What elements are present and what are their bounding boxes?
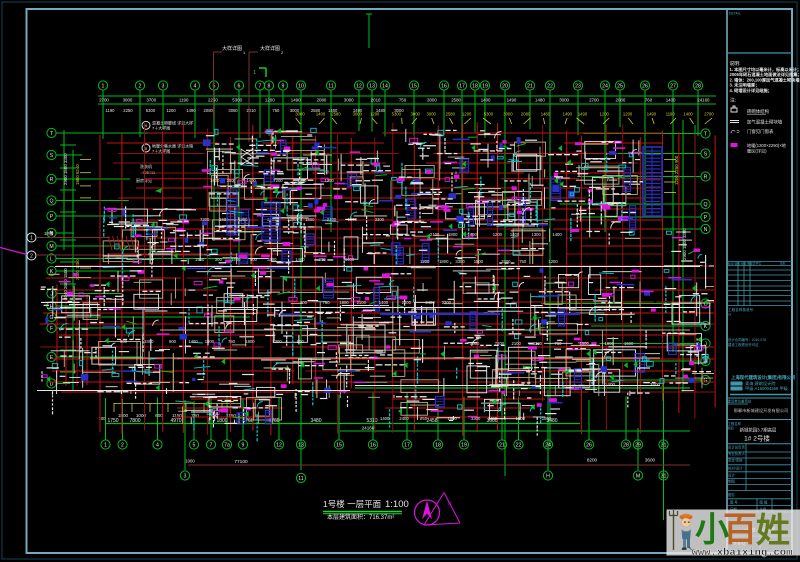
svg-text:R: R (50, 177, 54, 183)
svg-text:7200: 7200 (495, 341, 505, 346)
svg-text:2400: 2400 (488, 416, 498, 421)
svg-text:12: 12 (356, 83, 362, 89)
svg-text:1400: 1400 (552, 232, 562, 237)
svg-text:S: S (704, 151, 708, 157)
svg-text:1400: 1400 (188, 339, 198, 344)
svg-text:750: 750 (399, 98, 407, 103)
svg-text:750: 750 (228, 339, 236, 344)
svg-text:1490: 1490 (291, 98, 301, 103)
svg-text:5300: 5300 (146, 108, 156, 113)
svg-text:1号楼 一层平面: 1号楼 一层平面 (323, 499, 382, 509)
svg-text:1400: 1400 (210, 178, 220, 183)
svg-text:900: 900 (250, 257, 258, 262)
svg-text:7800: 7800 (129, 418, 140, 424)
svg-text:N: N (704, 227, 708, 233)
svg-text:11: 11 (298, 476, 303, 482)
svg-text:标记 处数 分区 修改文件号: 标记 处数 分区 修改文件号 (728, 262, 761, 266)
svg-text:7: 7 (210, 442, 213, 448)
svg-text:24160: 24160 (697, 98, 710, 103)
svg-text:百: 百 (723, 512, 757, 549)
svg-text:2400: 2400 (425, 300, 435, 305)
svg-text:5300: 5300 (232, 98, 242, 103)
svg-text:设计: 设计 (728, 473, 735, 478)
svg-text:1200: 1200 (493, 232, 503, 237)
svg-text:300: 300 (319, 257, 327, 262)
svg-text:门窗见门窗表: 门窗见门窗表 (747, 128, 774, 135)
svg-text:17: 17 (459, 83, 465, 89)
svg-text:1500: 1500 (195, 257, 205, 262)
svg-text:1490: 1490 (563, 112, 573, 117)
svg-text:签名: 签名 (780, 262, 786, 266)
svg-text:1300: 1300 (324, 178, 334, 183)
svg-text:N: N (448, 501, 452, 507)
svg-text:1500: 1500 (516, 416, 526, 421)
svg-text:1: 1 (102, 83, 105, 89)
svg-text:5310: 5310 (366, 418, 377, 424)
svg-text:25: 25 (617, 83, 623, 89)
svg-text:www.xbaixing.com: www.xbaixing.com (692, 547, 793, 559)
svg-text:13: 13 (369, 83, 375, 89)
svg-text:2: 2 (30, 254, 33, 260)
svg-text:2080: 2080 (204, 108, 214, 113)
svg-text:9: 9 (242, 442, 245, 448)
svg-text:3000: 3000 (559, 98, 569, 103)
svg-text:2010: 2010 (246, 108, 256, 113)
svg-text:1800: 1800 (245, 339, 255, 344)
svg-text:2080: 2080 (521, 112, 531, 117)
svg-text:1800: 1800 (439, 259, 449, 264)
svg-text:1400: 1400 (683, 112, 693, 117)
svg-text:邴鄆市新城建设开发有限公司: 邴鄆市新城建设开发有限公司 (734, 407, 788, 414)
svg-text:1500: 1500 (580, 341, 590, 346)
svg-text:1190: 1190 (179, 98, 189, 103)
svg-text:Q: Q (703, 202, 707, 208)
svg-text:图名: 图名 (728, 492, 735, 497)
svg-text:M: M (636, 473, 640, 479)
svg-text:3000: 3000 (427, 98, 437, 103)
svg-text:1200: 1200 (600, 112, 610, 117)
svg-text:2900 1500 3300: 2900 1500 3300 (682, 228, 687, 260)
svg-text:1800: 1800 (339, 300, 349, 305)
svg-text:设计总负责: 设计总负责 (728, 445, 746, 450)
svg-text:7a: 7a (224, 442, 230, 448)
svg-text:1300: 1300 (532, 232, 542, 237)
svg-text:2100: 2100 (430, 232, 440, 237)
svg-text:1800 5240: 1800 5240 (75, 164, 80, 185)
svg-text:1# 2号楼: 1# 2号楼 (744, 434, 770, 443)
svg-text:1000: 1000 (185, 459, 195, 464)
svg-text:DETAIL: DETAIL (729, 12, 741, 16)
svg-text:K: K (704, 324, 708, 330)
svg-text:F: F (50, 326, 53, 332)
svg-text:16: 16 (370, 442, 376, 448)
svg-text:760: 760 (645, 98, 653, 103)
svg-text:16: 16 (441, 83, 447, 89)
svg-text:1: 1 (30, 236, 33, 242)
svg-text:Q: Q (49, 198, 53, 204)
svg-text:1800: 1800 (305, 217, 315, 222)
svg-text:3: 3 (184, 473, 187, 479)
svg-text:2580: 2580 (446, 112, 456, 117)
svg-text:3300: 3300 (501, 259, 511, 264)
svg-text:1200: 1200 (623, 112, 633, 117)
svg-text:大样详图: 大样详图 (260, 45, 280, 52)
svg-text:22: 22 (516, 442, 522, 448)
svg-text:工程名称: 工程名称 (728, 421, 742, 426)
svg-text:19: 19 (461, 442, 467, 448)
svg-text:1200: 1200 (166, 108, 176, 113)
svg-text:1800: 1800 (205, 339, 215, 344)
svg-text:2100: 2100 (512, 341, 522, 346)
svg-text:900: 900 (297, 339, 305, 344)
svg-text:1500: 1500 (348, 217, 358, 222)
svg-text:750: 750 (519, 259, 527, 264)
svg-text:1200: 1200 (265, 98, 275, 103)
svg-text:说明:: 说明: (730, 60, 741, 67)
svg-text:大样详图: 大样详图 (222, 45, 242, 52)
svg-text:15: 15 (411, 83, 417, 89)
svg-text:3: 3 (162, 83, 165, 89)
svg-text:H: H (546, 473, 550, 479)
svg-text:900: 900 (120, 339, 128, 344)
svg-text:10: 10 (298, 83, 304, 89)
svg-text:4: 4 (156, 442, 159, 448)
svg-text:17: 17 (404, 442, 410, 448)
svg-text:R: R (704, 174, 708, 180)
svg-text:1200: 1200 (287, 217, 297, 222)
svg-text:2400: 2400 (402, 300, 412, 305)
svg-text:4: 4 (194, 83, 197, 89)
svg-text:1400: 1400 (666, 98, 676, 103)
svg-text:2080: 2080 (317, 98, 327, 103)
svg-text:4970: 4970 (170, 418, 181, 424)
svg-text:1800: 1800 (118, 413, 129, 418)
svg-text:1: 1 (104, 442, 107, 448)
svg-text:3000: 3000 (503, 112, 513, 117)
svg-text:1400: 1400 (468, 232, 478, 237)
svg-text:12: 12 (276, 442, 282, 448)
svg-text:2900 1500 3300: 2900 1500 3300 (63, 153, 68, 185)
svg-text:7＋大样图: 7＋大样图 (152, 148, 170, 154)
svg-text:校对/设计: 校对/设计 (728, 466, 743, 471)
svg-text:28: 28 (623, 442, 629, 448)
svg-text:18: 18 (472, 83, 478, 89)
svg-text:甲级 A150004368 甲级: 甲级 A150004368 甲级 (745, 385, 789, 392)
svg-text:300: 300 (227, 178, 235, 183)
svg-text:20: 20 (502, 83, 508, 89)
svg-text:23: 23 (575, 83, 581, 89)
svg-text:1200: 1200 (238, 217, 248, 222)
svg-text:姓: 姓 (756, 512, 790, 550)
svg-text:1400: 1400 (345, 257, 355, 262)
svg-text:5300: 5300 (392, 112, 402, 117)
svg-text:1480: 1480 (535, 98, 545, 103)
svg-text:1200: 1200 (548, 259, 558, 264)
svg-text:21: 21 (527, 83, 533, 89)
svg-text:26: 26 (642, 83, 648, 89)
svg-text:7＋大样图: 7＋大样图 (152, 125, 170, 131)
svg-text:28: 28 (695, 83, 701, 89)
svg-text:3300: 3300 (455, 259, 465, 264)
svg-text:G: G (703, 378, 707, 384)
svg-text:建设单位盖章处: 建设单位盖章处 (728, 399, 752, 404)
svg-text:2580: 2580 (451, 98, 461, 103)
svg-text:3000: 3000 (295, 112, 305, 117)
svg-text:1400: 1400 (231, 257, 241, 262)
svg-text:S: S (50, 153, 54, 159)
svg-text:1800: 1800 (447, 416, 457, 421)
svg-text:1190: 1190 (666, 112, 676, 117)
svg-text:14: 14 (382, 83, 388, 89)
svg-text:M: M (49, 244, 53, 250)
svg-text:900: 900 (300, 300, 308, 305)
svg-text:22: 22 (547, 83, 553, 89)
svg-text:1200: 1200 (462, 112, 472, 117)
svg-text:1490: 1490 (507, 98, 517, 103)
svg-text:1490: 1490 (578, 112, 588, 117)
svg-text:3300: 3300 (267, 257, 277, 262)
svg-text:2580: 2580 (331, 112, 341, 117)
svg-text:1490: 1490 (647, 112, 657, 117)
svg-text:8: 8 (268, 83, 271, 89)
svg-text:3000: 3000 (411, 112, 421, 117)
svg-text:P: P (704, 215, 708, 221)
svg-text:3600: 3600 (645, 458, 656, 463)
svg-text:1400: 1400 (316, 112, 326, 117)
svg-text:2080: 2080 (616, 98, 626, 103)
svg-text:1: 1 (253, 70, 256, 76)
svg-text:上海现代建筑设计(集团)有限公司: 上海现代建筑设计(集团)有限公司 (731, 374, 795, 381)
svg-text:1300: 1300 (272, 339, 282, 344)
svg-text:1800: 1800 (448, 232, 458, 237)
svg-text:5300: 5300 (484, 112, 494, 117)
svg-text:2250: 2250 (123, 108, 133, 113)
svg-text:1490: 1490 (186, 108, 196, 113)
svg-text:300: 300 (215, 257, 223, 262)
svg-text:3300 1250: 3300 1250 (75, 259, 80, 280)
svg-text:4. 砌墙设计详见结施；: 4. 砌墙设计详见结施； (730, 87, 772, 94)
svg-text:审定/审核: 审定/审核 (728, 458, 743, 463)
svg-text:专业负责人: 专业负责人 (728, 451, 746, 456)
svg-text:750: 750 (555, 341, 563, 346)
svg-text:1500: 1500 (624, 341, 634, 346)
svg-text:3300: 3300 (471, 416, 481, 421)
svg-text:1800: 1800 (605, 341, 615, 346)
svg-text:1400: 1400 (246, 178, 256, 183)
svg-text:7200: 7200 (273, 178, 283, 183)
svg-text:1400: 1400 (379, 300, 389, 305)
svg-text:3080: 3080 (344, 98, 354, 103)
svg-text:11: 11 (328, 83, 333, 89)
svg-text:2400: 2400 (144, 339, 154, 344)
svg-text:E: E (50, 355, 54, 361)
svg-text:77100: 77100 (234, 459, 248, 465)
svg-text:1400: 1400 (295, 257, 305, 262)
svg-text:7: 7 (259, 83, 262, 89)
svg-text:2458: 2458 (426, 418, 437, 424)
svg-text:2100: 2100 (327, 217, 337, 222)
svg-text:1400: 1400 (380, 416, 390, 421)
svg-text:8200: 8200 (587, 458, 598, 463)
svg-text:暖区(详见): 暖区(详见) (747, 148, 767, 155)
svg-text:1200: 1200 (420, 259, 430, 264)
svg-text:1190: 1190 (105, 108, 115, 113)
svg-text:图 幅: 图 幅 (760, 500, 768, 505)
svg-text:本层建筑面积：716.37m²: 本层建筑面积：716.37m² (327, 513, 394, 521)
svg-text:3000: 3000 (427, 112, 437, 117)
svg-text:2700: 2700 (589, 98, 599, 103)
svg-text:2: 2 (121, 442, 124, 448)
svg-text:1400: 1400 (510, 232, 520, 237)
svg-text:图 号: 图 号 (730, 500, 738, 505)
svg-text:7200: 7200 (200, 217, 210, 222)
svg-text:21: 21 (499, 442, 505, 448)
svg-text:600: 600 (155, 413, 163, 418)
svg-text:27: 27 (670, 83, 676, 89)
svg-text:1480: 1480 (541, 112, 551, 117)
svg-text:31: 31 (661, 473, 667, 479)
svg-text:加气混凝土砌块墙: 加气混凝土砌块墙 (747, 119, 783, 126)
svg-text:2010: 2010 (371, 98, 381, 103)
svg-text:1200: 1200 (370, 112, 380, 117)
svg-text:2700: 2700 (99, 98, 109, 103)
svg-text:2400: 2400 (399, 416, 409, 421)
svg-text:设计合同编号：2010-078: 设计合同编号：2010-078 (728, 337, 766, 342)
svg-text:26: 26 (586, 442, 592, 448)
svg-text:1400: 1400 (481, 98, 491, 103)
svg-text:L: L (50, 256, 53, 262)
svg-text:P: P (50, 214, 54, 220)
svg-text:2: 2 (139, 83, 142, 89)
svg-text:9: 9 (282, 83, 285, 89)
svg-text:1800: 1800 (542, 416, 552, 421)
svg-text:18: 18 (435, 442, 441, 448)
svg-text:750: 750 (323, 300, 331, 305)
svg-text:1750: 1750 (107, 418, 118, 424)
svg-text:900: 900 (169, 339, 177, 344)
svg-text:3300: 3300 (533, 341, 543, 346)
svg-text:注:: 注: (730, 97, 736, 104)
svg-text:⤺ ⊃: ⤺ ⊃ (730, 130, 739, 135)
svg-text:19: 19 (482, 83, 488, 89)
svg-text:工程名称核准号:: 工程名称核准号: (728, 307, 754, 312)
svg-text:1#楼: 1#楼 (44, 230, 54, 237)
svg-text:3480: 3480 (310, 418, 321, 424)
svg-text:项目: 项目 (728, 427, 734, 431)
svg-text:洗衣机: 洗衣机 (140, 163, 152, 169)
svg-text:6: 6 (238, 83, 241, 89)
svg-text:制图: 制图 (728, 479, 735, 484)
svg-text:3080: 3080 (228, 108, 238, 113)
svg-text:2700: 2700 (704, 112, 714, 117)
svg-text:xx: xx (728, 313, 732, 317)
svg-text:24: 24 (602, 83, 608, 89)
svg-text:3300: 3300 (470, 341, 480, 346)
svg-text:3000: 3000 (353, 112, 363, 117)
svg-text:5: 5 (193, 442, 196, 448)
svg-text:3000: 3000 (123, 98, 133, 103)
svg-text:3300: 3300 (375, 217, 385, 222)
svg-text:2400: 2400 (219, 217, 229, 222)
svg-text:1:100: 1:100 (385, 499, 409, 510)
svg-text:3700: 3700 (146, 98, 156, 103)
svg-text:建设工程规划许可证: 建设工程规划许可证 (728, 342, 759, 347)
svg-text:750: 750 (420, 416, 428, 421)
svg-text:1500: 1500 (474, 259, 484, 264)
svg-text:15: 15 (336, 442, 342, 448)
svg-text:3300: 3300 (442, 300, 452, 305)
svg-text:750: 750 (272, 108, 280, 113)
svg-text:新城花园3.7期高层: 新城花园3.7期高层 (740, 427, 777, 434)
svg-text:2100: 2100 (357, 300, 367, 305)
svg-text:1800: 1800 (297, 178, 307, 183)
svg-text:24160: 24160 (362, 426, 375, 431)
